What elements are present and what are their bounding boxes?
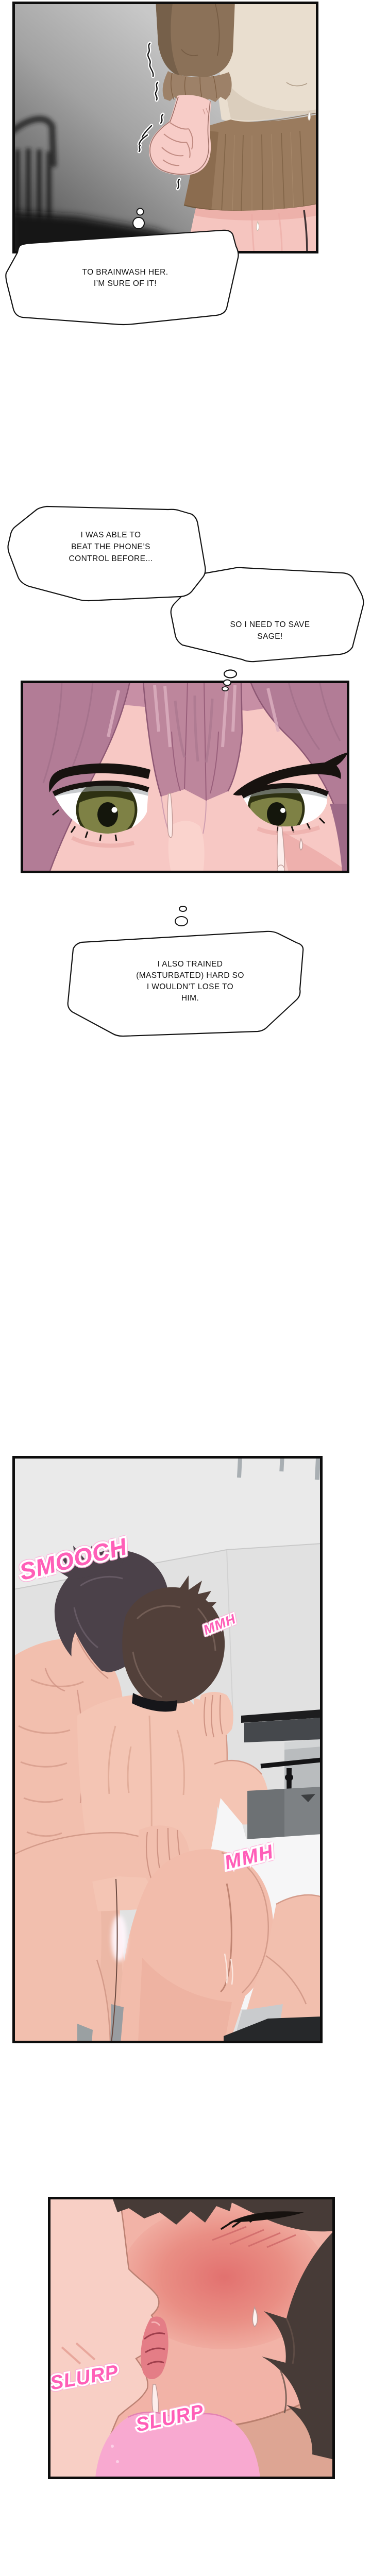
svg-text:I’M SURE OF IT!: I’M SURE OF IT! <box>94 279 157 288</box>
svg-text:SAGE!: SAGE! <box>257 632 282 641</box>
svg-text:TO BRAINWASH HER.: TO BRAINWASH HER. <box>82 268 168 277</box>
svg-text:HIM.: HIM. <box>181 994 199 1003</box>
svg-text:SO I NEED TO SAVE: SO I NEED TO SAVE <box>230 620 310 629</box>
svg-text:I ALSO TRAINED: I ALSO TRAINED <box>158 960 223 969</box>
svg-text:I WOULDN’T LOSE TO: I WOULDN’T LOSE TO <box>147 982 233 991</box>
svg-text:CONTROL BEFORE...: CONTROL BEFORE... <box>69 554 153 563</box>
svg-text:I WAS ABLE TO: I WAS ABLE TO <box>81 531 141 539</box>
svg-text:BEAT THE PHONE’S: BEAT THE PHONE’S <box>71 543 150 551</box>
svg-text:(MASTURBATED) HARD SO: (MASTURBATED) HARD SO <box>136 971 244 980</box>
